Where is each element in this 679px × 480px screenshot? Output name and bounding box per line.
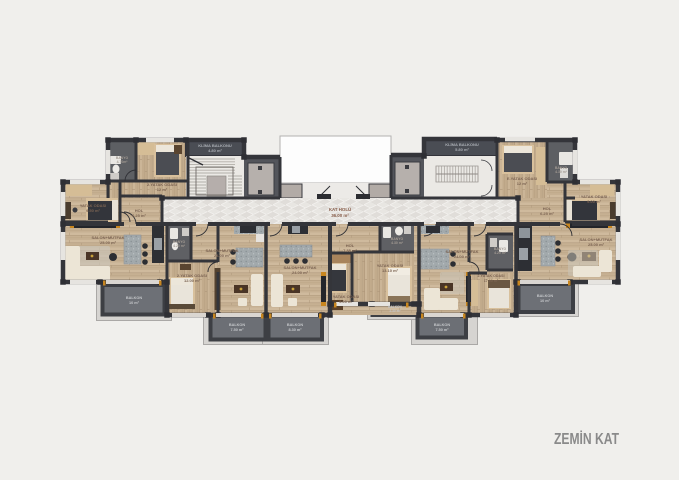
svg-text:24.00 m²: 24.00 m²	[214, 253, 231, 258]
svg-text:24.00 m²: 24.00 m²	[454, 254, 471, 259]
svg-text:13.10 m²: 13.10 m²	[382, 268, 399, 273]
svg-text:10 m²: 10 m²	[540, 299, 551, 303]
svg-text:4.70m²: 4.70m²	[117, 160, 129, 164]
svg-text:12 m²: 12 m²	[157, 187, 168, 192]
svg-text:12.00 m²: 12.00 m²	[184, 278, 201, 283]
svg-text:6.25 m²: 6.25 m²	[132, 213, 146, 218]
svg-text:6.25 m²: 6.25 m²	[540, 211, 554, 216]
svg-text:17.00 m²: 17.00 m²	[484, 279, 499, 283]
svg-text:4.30 m²: 4.30 m²	[555, 170, 568, 174]
svg-text:9.50 m²: 9.50 m²	[86, 208, 100, 213]
svg-text:4.30 m²: 4.30 m²	[391, 241, 404, 245]
svg-text:5.80 m²: 5.80 m²	[455, 147, 469, 152]
svg-text:36.00 m²: 36.00 m²	[331, 213, 349, 218]
svg-text:7.50 m²: 7.50 m²	[230, 328, 244, 332]
svg-text:BALKON: BALKON	[434, 323, 450, 327]
svg-text:12 m²: 12 m²	[517, 181, 528, 186]
svg-text:24.00 m²: 24.00 m²	[292, 270, 309, 275]
svg-text:2.30 m²: 2.30 m²	[390, 309, 401, 313]
svg-text:ZEMİN KAT: ZEMİN KAT	[554, 430, 619, 448]
svg-text:KAT HOLÜ: KAT HOLÜ	[329, 207, 351, 212]
svg-text:BALKON: BALKON	[537, 294, 553, 298]
svg-text:4.20 m²: 4.20 m²	[173, 244, 186, 248]
svg-text:BALKON: BALKON	[126, 296, 142, 300]
svg-text:7.50 m²: 7.50 m²	[435, 328, 449, 332]
svg-text:2.YATAK ODASI: 2.YATAK ODASI	[478, 274, 505, 278]
svg-text:25.00 m²: 25.00 m²	[588, 242, 605, 247]
svg-text:7.35 m²: 7.35 m²	[343, 248, 357, 253]
svg-text:8.30 m²: 8.30 m²	[288, 328, 302, 332]
svg-text:BALKON: BALKON	[287, 323, 303, 327]
svg-text:BALKON: BALKON	[229, 323, 245, 327]
svg-text:9.00 m²: 9.00 m²	[339, 299, 353, 304]
svg-text:9.00 m²: 9.00 m²	[587, 199, 601, 204]
svg-text:25.00 m²: 25.00 m²	[100, 240, 117, 245]
svg-text:10 m²: 10 m²	[129, 301, 140, 305]
svg-text:4.80 m²: 4.80 m²	[208, 148, 222, 153]
svg-text:4.20 m²: 4.20 m²	[494, 251, 507, 255]
